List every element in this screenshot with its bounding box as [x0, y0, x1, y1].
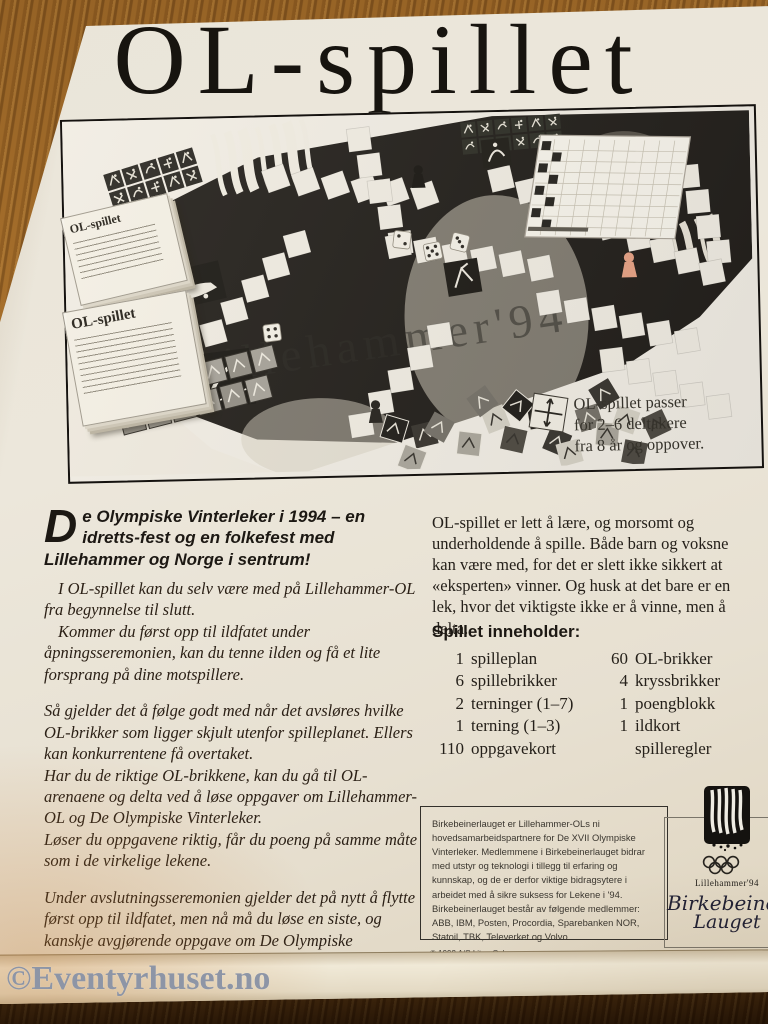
photo-stage: OL-spillet illehammer'94: [0, 0, 768, 1024]
watermark: ©Eventyrhuset.no: [6, 960, 270, 998]
item-count: 60: [604, 648, 628, 670]
body-paragraph: Løser du oppgavene riktig, får du poeng …: [44, 829, 422, 872]
drop-cap: D: [44, 508, 77, 545]
contents-row: 1terning (1–3) 1ildkort: [432, 715, 762, 737]
item-count: 1: [604, 693, 628, 715]
item-count: 1: [432, 648, 464, 670]
card-deck: OL-spillet: [62, 290, 207, 427]
logo-organisation-name: Birkebeiner Lauget: [665, 894, 768, 931]
item-count: 4: [604, 670, 628, 692]
body-paragraph: Kommer du først opp til ildfatet under å…: [44, 621, 422, 685]
item-label: poengblokk: [635, 693, 715, 715]
contents-row: 1spilleplan 60OL-brikker: [432, 648, 762, 670]
card-fine-print: [74, 320, 181, 395]
caption-line: fra 8 år og oppover.: [574, 432, 749, 457]
olympic-rings-icon: [698, 855, 756, 877]
item-label: spillebrikker: [471, 670, 557, 692]
item-count: 1: [604, 715, 628, 737]
body-paragraph: I OL-spillet kan du selv være med på Lil…: [44, 578, 422, 621]
players-age-note: OL-spillet passer for 2–6 deltakere fra …: [573, 389, 749, 456]
item-count: 110: [432, 738, 464, 760]
lillehammer94-emblem-icon: [704, 786, 750, 852]
right-text-column: OL-spillet er lett å lære, og morsomt og…: [432, 512, 754, 639]
sponsor-info-box: Birkebeinerlauget er Lillehammer-OLs ni …: [420, 806, 668, 940]
item-count: 6: [432, 670, 464, 692]
item-label: spilleregler: [635, 738, 711, 760]
game-box-back: OL-spillet illehammer'94: [0, 0, 768, 1024]
intro-text: e Olympiske Vinterleker i 1994 – en idre…: [44, 507, 365, 569]
item-count: 2: [432, 693, 464, 715]
item-label: terning (1–3): [471, 715, 560, 737]
contents-row: 6spillebrikker 4kryssbrikker: [432, 670, 762, 692]
contents-list: Spillet inneholder: 1spilleplan 60OL-bri…: [432, 622, 762, 760]
logo-event-label: Lillehammer'94: [665, 878, 768, 888]
intro-paragraph: De Olympiske Vinterleker i 1994 – en idr…: [44, 506, 420, 570]
org-name-line: Lauget: [665, 913, 768, 931]
contents-heading: Spillet inneholder:: [432, 622, 762, 642]
item-label: terninger (1–7): [471, 693, 573, 715]
item-count: 1: [432, 715, 464, 737]
contents-row: 2terninger (1–7) 1poengblokk: [432, 693, 762, 715]
body-paragraph: Så gjelder det å følge godt med når det …: [44, 700, 422, 764]
item-label: oppgavekort: [471, 738, 556, 760]
birkebeinerlauget-logo-box: Lillehammer'94 Birkebeiner Lauget: [664, 817, 768, 948]
item-count: [604, 738, 628, 760]
item-label: OL-brikker: [635, 648, 712, 670]
contents-row: 110oppgavekort spilleregler: [432, 738, 762, 760]
left-text-column: I OL-spillet kan du selv være med på Lil…: [44, 578, 422, 972]
item-label: spilleplan: [471, 648, 537, 670]
item-label: kryssbrikker: [635, 670, 720, 692]
sponsor-text: Birkebeinerlauget er Lillehammer-OLs ni …: [432, 818, 645, 942]
board-photo-panel: illehammer'94 OL-spillet OL-spillet OL-s…: [60, 104, 764, 484]
body-paragraph: Har du de riktige OL-brikkene, kan du gå…: [44, 765, 422, 829]
item-label: ildkort: [635, 715, 680, 737]
